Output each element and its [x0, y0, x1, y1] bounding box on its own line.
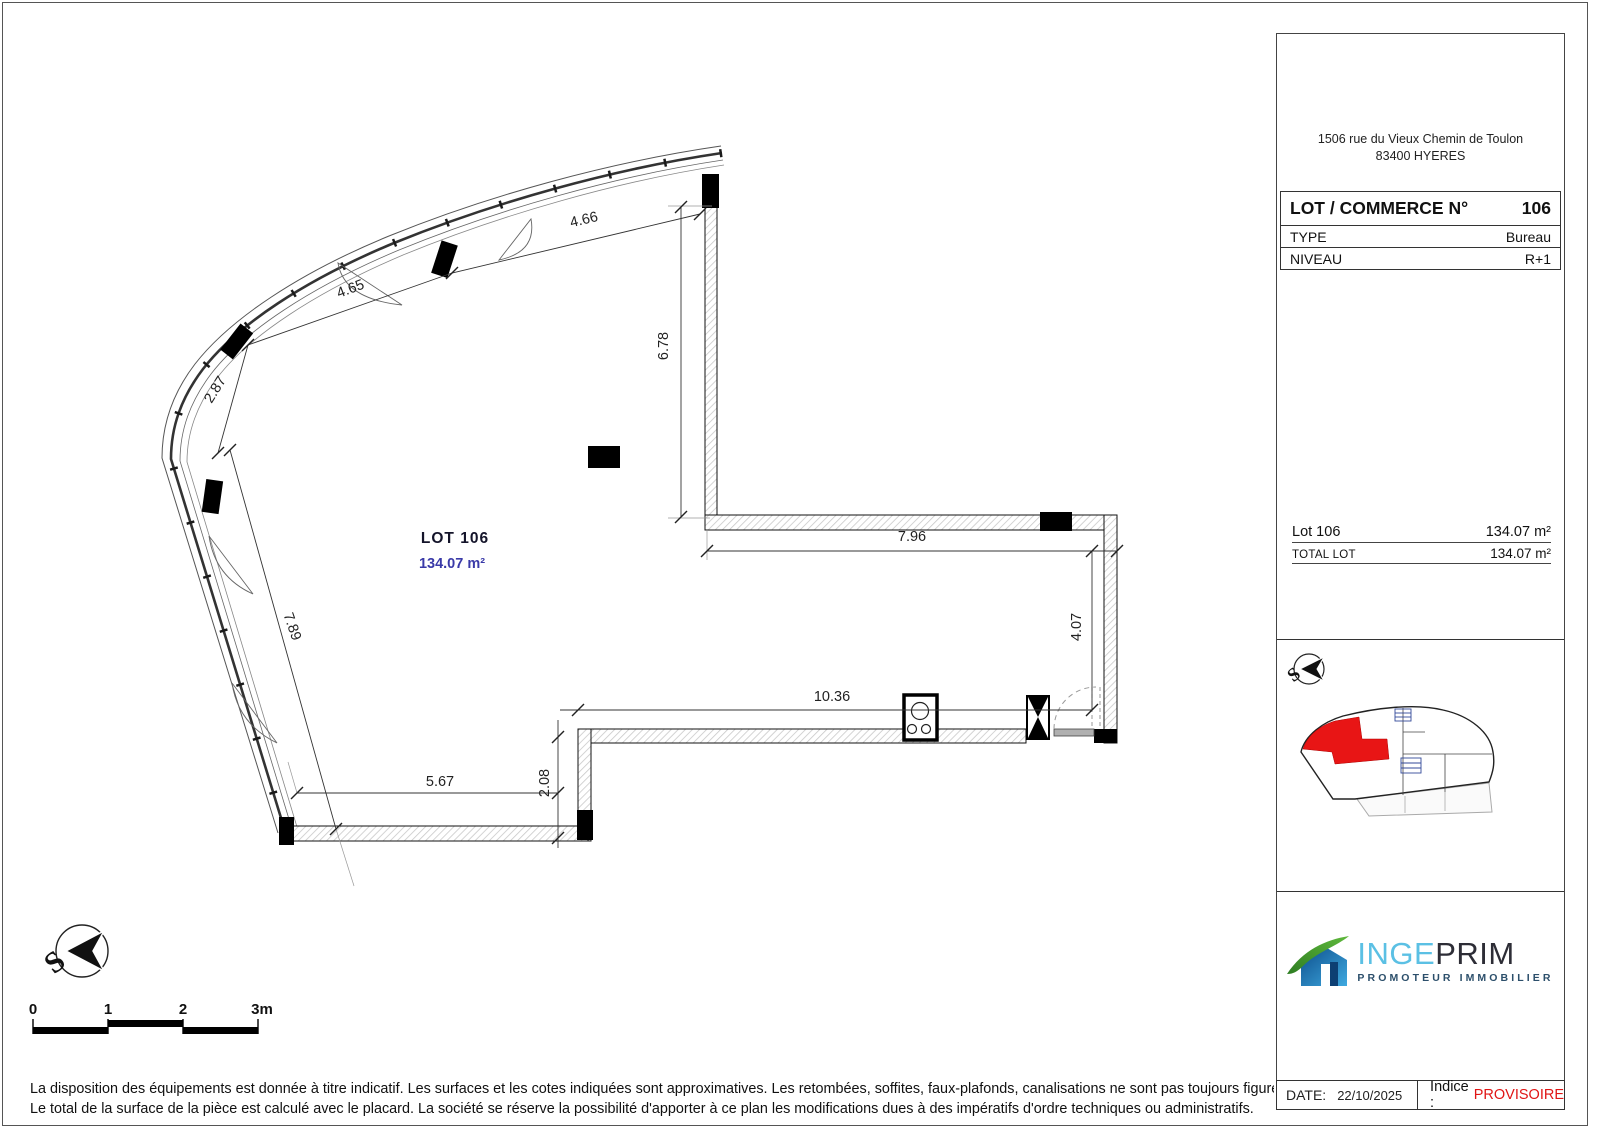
area-total-label: TOTAL LOT: [1292, 549, 1356, 561]
scale-1: 1: [104, 1001, 112, 1018]
sidebar-divider-2: [1277, 891, 1564, 892]
door-swing-arc: [1054, 687, 1096, 729]
lot-table-title-row: LOT / COMMERCE N° 106: [1281, 192, 1560, 225]
compass-sidebar: S: [1285, 647, 1345, 693]
dim-7-96: 7.96: [898, 529, 926, 545]
indice-cell: Indice : PROVISOIRE: [1418, 1081, 1564, 1109]
project-address: 1506 rue du Vieux Chemin de Toulon 83400…: [1277, 131, 1564, 165]
building-key-plan: [1295, 702, 1510, 857]
column-left-curve: [202, 479, 223, 514]
dim-6-78: 6.78: [656, 332, 672, 360]
date-value: 22/10/2025: [1337, 1088, 1402, 1103]
walls: [286, 205, 1117, 841]
indice-label: Indice :: [1430, 1079, 1469, 1111]
date-cell: DATE: 22/10/2025: [1277, 1081, 1418, 1109]
dim-2-87: 2.87: [201, 374, 230, 406]
lot-area-label: 134.07 m²: [419, 556, 485, 572]
column-door-corner: [1094, 729, 1117, 743]
address-line-2: 83400 HYERES: [1277, 148, 1564, 165]
logo-name-prim: PRIM: [1435, 936, 1515, 971]
areas-table: Lot 106 134.07 m² TOTAL LOT 134.07 m²: [1292, 521, 1551, 564]
lot-info-table: LOT / COMMERCE N° 106 TYPE Bureau NIVEAU…: [1280, 191, 1561, 270]
logo-name: INGEPRIM: [1357, 939, 1553, 969]
area-row-value: 134.07 m²: [1486, 524, 1551, 540]
compass-letter: S: [38, 944, 71, 980]
column-bottom-left: [279, 817, 294, 845]
area-row-total: TOTAL LOT 134.07 m²: [1292, 544, 1551, 564]
indice-value: PROVISOIRE: [1474, 1087, 1564, 1103]
dim-10-36: 10.36: [814, 689, 850, 705]
compass-letter-small: S: [1285, 663, 1305, 686]
lot-table-title: LOT / COMMERCE N°: [1290, 198, 1468, 219]
disclaimer: La disposition des équipements est donné…: [30, 1079, 1274, 1119]
dim-2-08: 2.08: [537, 769, 553, 797]
compass-main: S: [38, 925, 108, 980]
wall-right: [1104, 515, 1117, 743]
wall-upper-right: [705, 205, 717, 518]
scale-3m: 3m: [251, 1001, 273, 1018]
column-top-right: [702, 174, 719, 208]
door-post: [1026, 695, 1050, 740]
type-label: TYPE: [1290, 229, 1327, 245]
lot-number: 106: [1522, 198, 1551, 219]
disclaimer-line-2: Le total de la surface de la pièce est c…: [30, 1099, 1274, 1119]
dim-4-66: 4.66: [568, 209, 599, 231]
ingeprim-house-icon: [1287, 934, 1349, 988]
column-inner-wall: [1040, 512, 1072, 531]
disclaimer-line-1: La disposition des équipements est donné…: [30, 1079, 1274, 1099]
scale-0: 0: [29, 1001, 37, 1018]
floor-plan-sheet: 4.66 4.65 2.87 7.89 5.67 2.08 10.36 7.96…: [0, 0, 1600, 1131]
area-total-value: 134.07 m²: [1490, 546, 1551, 561]
wall-bottom-upper: [578, 729, 1026, 743]
sidebar-divider-1: [1277, 639, 1564, 640]
lot-number-label: LOT 106: [421, 530, 489, 547]
dim-4-65: 4.65: [335, 277, 367, 302]
columns: [202, 174, 1117, 845]
date-label: DATE:: [1286, 1087, 1326, 1103]
title-block-panel: 1506 rue du Vieux Chemin de Toulon 83400…: [1276, 33, 1565, 1110]
level-label: NIVEAU: [1290, 251, 1342, 267]
area-row-label: Lot 106: [1292, 524, 1340, 540]
compass-arrow-small-icon: [1300, 657, 1324, 681]
dim-7-89: 7.89: [280, 611, 304, 643]
type-value: Bureau: [1506, 229, 1551, 245]
date-indice-row: DATE: 22/10/2025 Indice : PROVISOIRE: [1276, 1080, 1565, 1110]
window-swing-arcs: [209, 219, 532, 743]
entrance-door: [1054, 687, 1100, 736]
lot-type-row: TYPE Bureau: [1281, 225, 1560, 247]
column-step: [577, 810, 593, 840]
dim-4-07: 4.07: [1069, 613, 1085, 641]
dim-5-67: 5.67: [426, 774, 454, 790]
address-line-1: 1506 rue du Vieux Chemin de Toulon: [1277, 131, 1564, 148]
logo-name-inge: INGE: [1357, 936, 1435, 971]
logo-text: INGEPRIM PROMOTEUR IMMOBILIER: [1357, 939, 1553, 984]
dimension-labels: 4.66 4.65 2.87 7.89 5.67 2.08 10.36 7.96…: [201, 209, 1085, 797]
logo-subtitle: PROMOTEUR IMMOBILIER: [1357, 972, 1553, 984]
compass-arrow-icon: [66, 931, 104, 971]
column-freestanding: [588, 446, 620, 468]
level-value: R+1: [1525, 251, 1551, 267]
kitchenette: [904, 695, 937, 740]
area-row-lot: Lot 106 134.07 m²: [1292, 521, 1551, 543]
floor-plan-drawing: 4.66 4.65 2.87 7.89 5.67 2.08 10.36 7.96…: [0, 0, 1250, 1131]
door-leaf: [1054, 729, 1094, 736]
ingeprim-logo: INGEPRIM PROMOTEUR IMMOBILIER: [1277, 934, 1564, 988]
scale-2: 2: [179, 1001, 187, 1018]
scale-bar: 0 1 2 3m: [29, 1001, 273, 1034]
lot-level-row: NIVEAU R+1: [1281, 247, 1560, 269]
building-outline: [1301, 707, 1494, 799]
